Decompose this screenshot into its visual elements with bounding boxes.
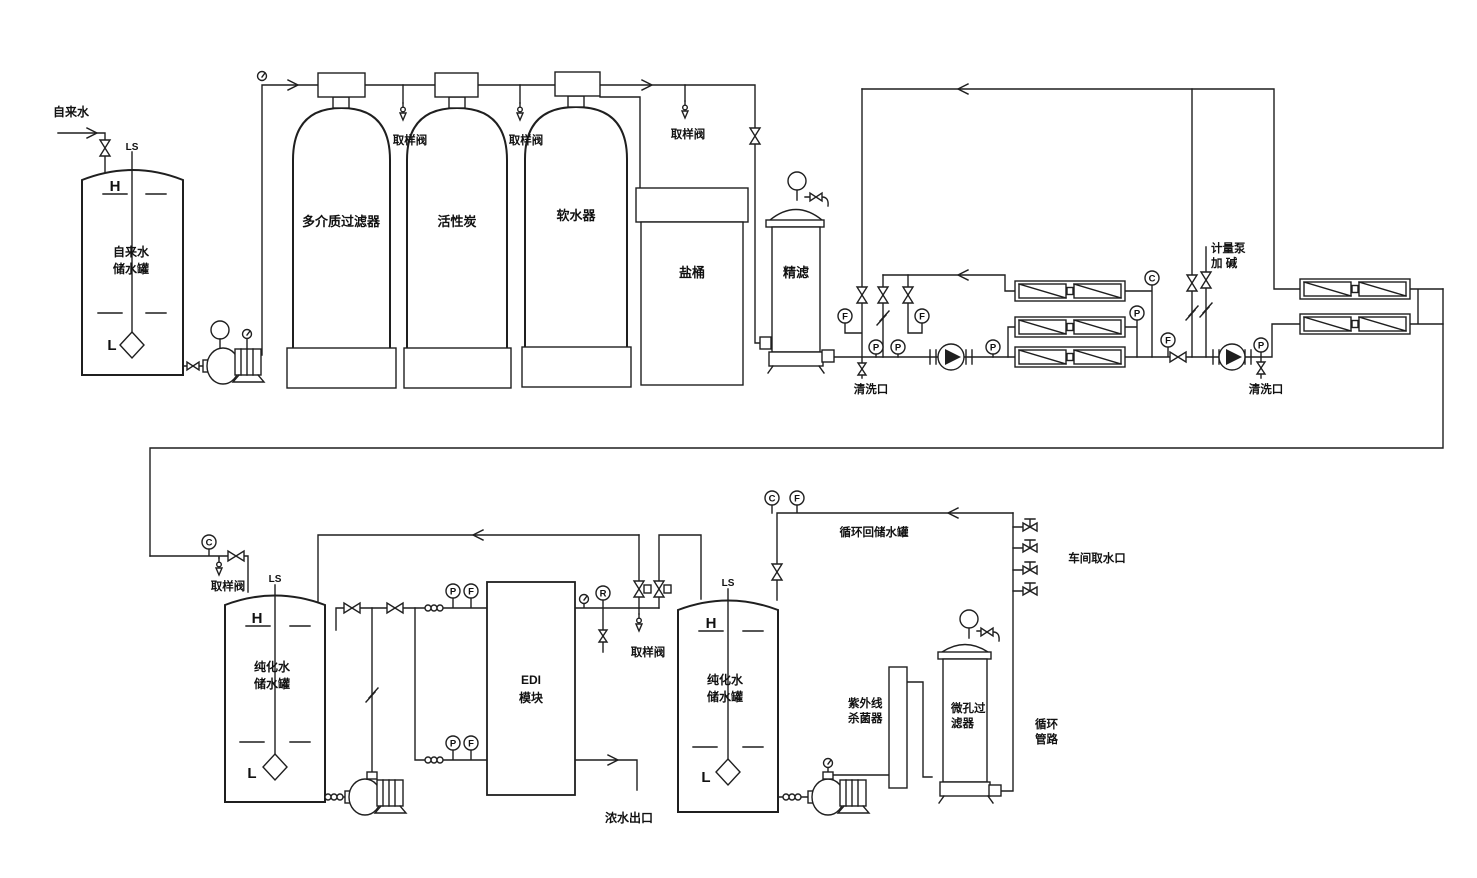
label-sampling-valve: 取样阀 xyxy=(631,645,666,659)
circulation-pump xyxy=(783,759,869,816)
vent-ball-icon xyxy=(960,610,978,628)
dosing-valve-icon xyxy=(1201,272,1211,288)
pipe-takeoff-stubs xyxy=(1013,527,1022,591)
pipe-ro1-bracket xyxy=(1125,320,1137,357)
label-micro-filter: 滤器 xyxy=(951,716,974,730)
label-ls: LS xyxy=(126,142,139,153)
label-fine-filter: 精滤 xyxy=(783,265,809,280)
ro-stage2-pump xyxy=(1213,344,1251,370)
label-sampling-valve: 取样阀 xyxy=(211,579,246,593)
pipe-pump3-discharge xyxy=(828,768,889,775)
svg-text:C: C xyxy=(206,538,213,549)
label-circ-pipe: 循环 xyxy=(1034,717,1058,731)
coupling-icon xyxy=(425,757,443,763)
dosing-valve-icon xyxy=(1187,275,1197,291)
cleaning-port-valve-icon xyxy=(1257,362,1265,374)
pipe-dosing xyxy=(1192,89,1206,357)
pipe-circ-riser xyxy=(1001,513,1013,791)
svg-text:F: F xyxy=(919,312,925,323)
label-sampling-valve: 取样阀 xyxy=(509,133,544,147)
svg-text:P: P xyxy=(1258,341,1265,352)
valve-icon xyxy=(903,287,913,303)
pressure-gauge-icon xyxy=(258,72,267,81)
fine-filter-inlet-valve-icon xyxy=(750,128,760,144)
label-edi: EDI xyxy=(521,673,541,687)
label-tap-water: 自来水 xyxy=(53,104,90,119)
uv-sterilizer xyxy=(889,667,907,788)
pipe-uv-to-mf xyxy=(907,682,932,777)
pressure-indicator: P xyxy=(446,584,460,598)
label-edi-module: 模块 xyxy=(519,690,544,705)
pipe-ro1-cleanport xyxy=(845,89,862,378)
workshop-takeoff-valve-icon xyxy=(1023,562,1037,574)
control-valve-head xyxy=(318,73,365,97)
label-pure-tank: 储水罐 xyxy=(707,689,743,704)
label-cleaning-port: 清洗口 xyxy=(1249,382,1284,396)
coupling-icon xyxy=(425,605,443,611)
svg-text:P: P xyxy=(895,343,902,354)
label-h: H xyxy=(706,615,717,632)
pressure-gauge-icon xyxy=(243,330,252,339)
label-circ-pipe: 管路 xyxy=(1035,732,1058,746)
softener-vessel xyxy=(522,72,631,387)
flow-indicator: F xyxy=(464,584,478,598)
label-ls: LS xyxy=(269,574,282,585)
edi-feed-pump xyxy=(325,772,406,815)
label-h: H xyxy=(252,610,263,627)
pipe-edi-feed-top xyxy=(336,598,487,630)
pressure-indicator: P xyxy=(869,340,883,354)
pipe-raw-inlet xyxy=(58,133,105,172)
coupling-icon xyxy=(783,794,801,800)
pipe-ro1-cond xyxy=(1125,285,1152,357)
pump-dome-icon xyxy=(211,321,229,339)
sampling-tap-icon xyxy=(216,558,222,575)
drain-valve-icon xyxy=(599,630,607,642)
label-salt-barrel: 盐桶 xyxy=(679,265,705,280)
label-raw-tank: 储水罐 xyxy=(113,261,149,276)
pressure-gauge-icon xyxy=(824,759,833,768)
svg-text:P: P xyxy=(450,739,457,750)
ro2-feed-valve-icon xyxy=(1170,352,1186,362)
process-flow-diagram: F F P P P P C F P C P F P F R C F 自来水 LS… xyxy=(0,0,1477,878)
label-activated-carbon: 活性炭 xyxy=(437,214,476,229)
label-metering-pump: 计量泵 xyxy=(1211,241,1246,255)
svg-text:R: R xyxy=(600,589,607,600)
sampling-tap-icon xyxy=(682,101,688,118)
flow-indicator: F xyxy=(464,736,478,750)
label-l: L xyxy=(107,337,116,354)
multimedia-filter-vessel xyxy=(287,73,396,388)
flow-indicator: F xyxy=(915,309,929,323)
tank2-return-valve-icon xyxy=(772,564,782,580)
pipe-edi-out xyxy=(575,600,659,652)
svg-text:P: P xyxy=(990,343,997,354)
label-raw-tank: 自来水 xyxy=(113,244,150,259)
activated-carbon-vessel xyxy=(404,73,511,388)
svg-text:P: P xyxy=(1134,309,1141,320)
pipe-ro2-right xyxy=(1410,289,1443,324)
valve-icon xyxy=(857,287,867,303)
pressure-indicator: P xyxy=(446,736,460,750)
vent-ball-icon xyxy=(788,172,806,190)
conductivity-indicator: C xyxy=(202,535,216,549)
pipe-ro2-feed xyxy=(1246,324,1300,378)
svg-text:F: F xyxy=(468,739,474,750)
sampling-tap-icon xyxy=(517,103,523,120)
control-valve-head xyxy=(555,72,600,96)
pressure-gauge-icon xyxy=(580,595,589,604)
valve-icon xyxy=(387,603,403,613)
pressure-indicator: P xyxy=(1254,338,1268,352)
solenoid-valve-icon xyxy=(654,581,671,597)
union-icon xyxy=(187,362,199,370)
label-uv: 杀菌器 xyxy=(848,711,883,725)
edi-module xyxy=(487,582,575,795)
svg-text:C: C xyxy=(769,494,776,505)
workshop-takeoff-valve-icon xyxy=(1023,540,1037,552)
workshop-takeoff-valve-icon xyxy=(1023,519,1037,531)
purified-water-tank-1 xyxy=(225,585,325,802)
pressure-indicator: P xyxy=(986,340,1000,354)
coupling-icon xyxy=(325,794,343,800)
svg-text:C: C xyxy=(1149,274,1156,285)
ro-stage2-membrane-array xyxy=(1300,279,1410,334)
conductivity-indicator: C xyxy=(765,491,779,505)
label-pure-tank: 纯化水 xyxy=(254,659,291,674)
label-softener: 软水器 xyxy=(556,208,596,223)
inlet-valve-icon xyxy=(100,140,110,156)
ro-stage1-membrane-array xyxy=(1015,281,1125,367)
label-l: L xyxy=(701,769,710,786)
sampling-tap-icon xyxy=(400,103,406,120)
control-valve-head xyxy=(435,73,478,97)
sampling-tap-icon xyxy=(636,614,642,631)
pipe-ro1-recycle xyxy=(883,275,1015,291)
conductivity-indicator: C xyxy=(1145,271,1159,285)
pipe-edi-risers xyxy=(639,535,701,608)
workshop-takeoff-valve-icon xyxy=(1023,583,1037,595)
flow-indicator: F xyxy=(1161,333,1175,347)
vent-valve-icon xyxy=(981,628,993,636)
cleaning-port-valve-icon xyxy=(858,363,866,375)
label-cleaning-port: 清洗口 xyxy=(854,382,889,396)
label-concentrate-outlet: 浓水出口 xyxy=(605,810,653,825)
label-sampling-valve: 取样阀 xyxy=(671,127,706,141)
flow-indicator: F xyxy=(838,309,852,323)
label-workshop-intake: 车间取水口 xyxy=(1068,551,1126,565)
diagram-canvas: F F P P P P C F P C P F P F R C F 自来水 LS… xyxy=(0,0,1477,878)
label-pure-tank: 纯化水 xyxy=(707,672,744,687)
label-h: H xyxy=(110,178,121,195)
tank1-inlet-valve-icon xyxy=(228,551,244,561)
svg-text:F: F xyxy=(842,312,848,323)
label-recirc-return: 循环回储水罐 xyxy=(839,525,909,539)
svg-text:P: P xyxy=(873,343,880,354)
label-multimedia-filter: 多介质过滤器 xyxy=(302,214,381,229)
resistivity-indicator: R xyxy=(596,586,610,600)
label-ls: LS xyxy=(722,578,735,589)
flow-indicator: F xyxy=(790,491,804,505)
svg-text:F: F xyxy=(1165,336,1171,347)
ro-stage1-pump xyxy=(930,344,972,370)
pressure-indicator: P xyxy=(891,340,905,354)
vent-valve-icon xyxy=(810,193,822,201)
pipe-ro1-manifold xyxy=(1008,327,1015,357)
valve-icon xyxy=(878,287,888,303)
salt-barrel xyxy=(636,188,748,385)
svg-text:F: F xyxy=(468,587,474,598)
label-uv: 紫外线 xyxy=(848,696,883,710)
pipe-circ-top xyxy=(772,505,1013,600)
svg-text:F: F xyxy=(794,494,800,505)
svg-text:P: P xyxy=(450,587,457,598)
label-pure-tank: 储水罐 xyxy=(254,676,290,691)
label-l: L xyxy=(247,765,256,782)
solenoid-valve-icon xyxy=(634,581,651,597)
valve-icon xyxy=(344,603,360,613)
label-add-alkali: 加 碱 xyxy=(1210,256,1238,270)
label-micro-filter: 微孔过 xyxy=(950,701,986,715)
raw-feed-pump xyxy=(187,72,267,385)
pressure-indicator: P xyxy=(1130,306,1144,320)
pipe-concentrate xyxy=(575,760,637,790)
label-sampling-valve: 取样阀 xyxy=(393,133,428,147)
